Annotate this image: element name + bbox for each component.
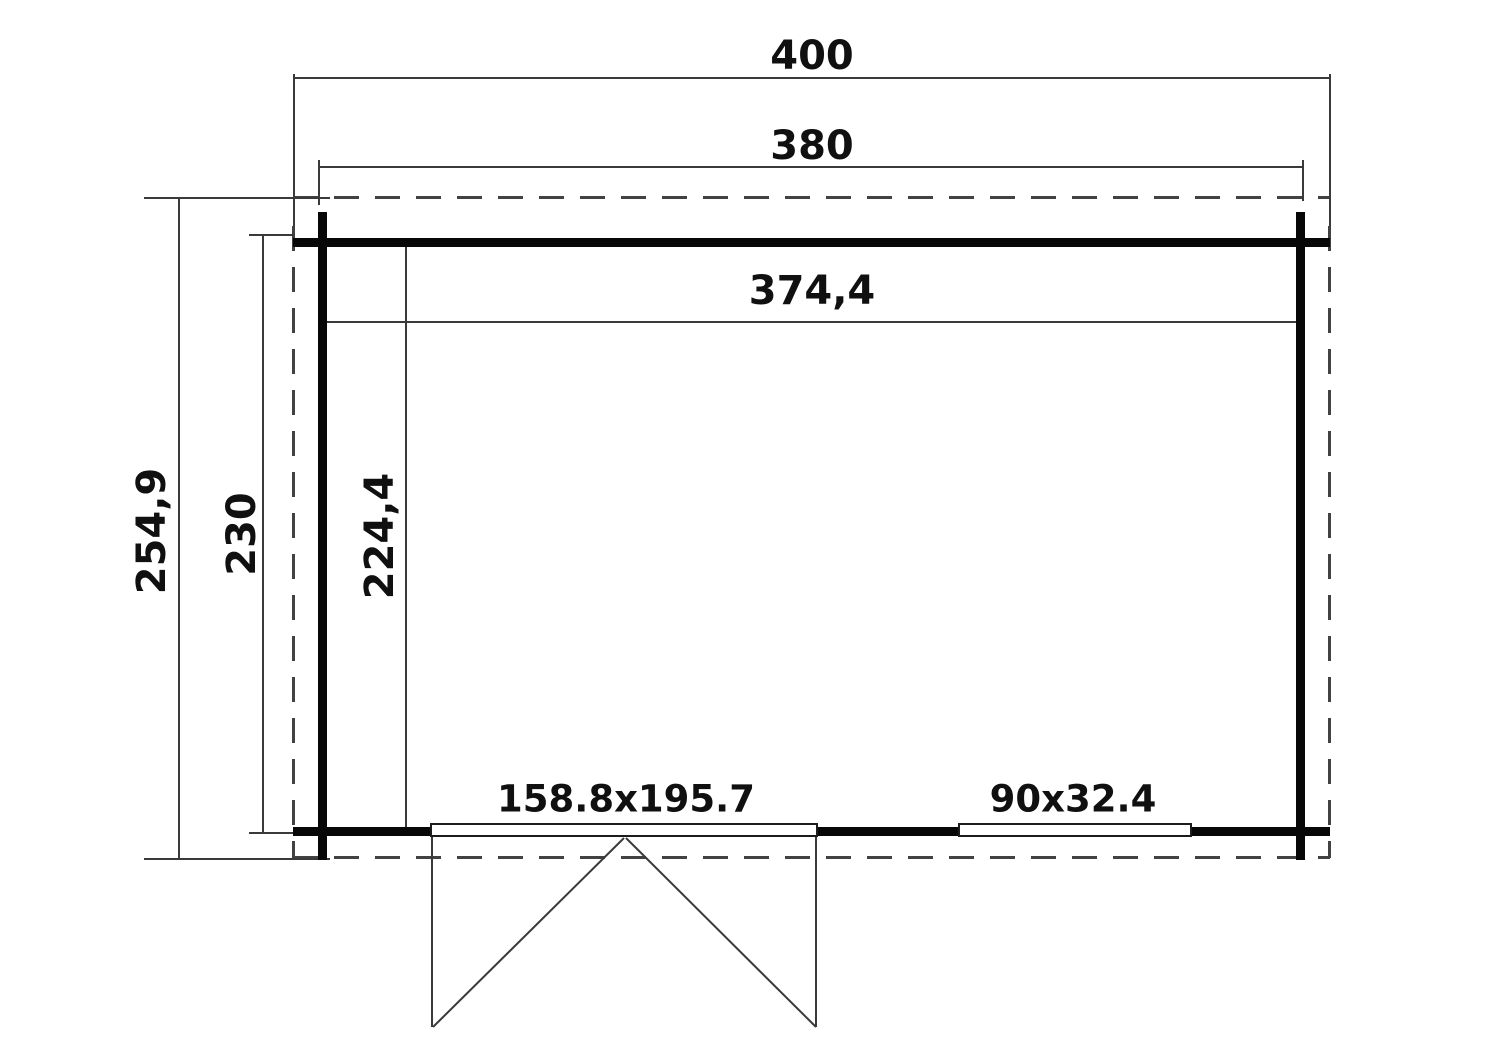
floor-plan-canvas: 400 380 374,4 254,9 230 224,4 158.8x195.… — [0, 0, 1500, 1060]
dim-label-wall-depth: 230 — [222, 492, 262, 576]
dim-label-interior-depth: 224,4 — [360, 473, 400, 600]
dim-label-overall-width: 400 — [770, 36, 854, 76]
dim-label-overall-depth: 254,9 — [132, 468, 172, 595]
dim-label-wall-width: 380 — [770, 126, 854, 166]
door-size-label: 158.8x195.7 — [497, 781, 755, 818]
dim-label-interior-width: 374,4 — [749, 271, 876, 311]
window-size-label: 90x32.4 — [990, 781, 1157, 818]
